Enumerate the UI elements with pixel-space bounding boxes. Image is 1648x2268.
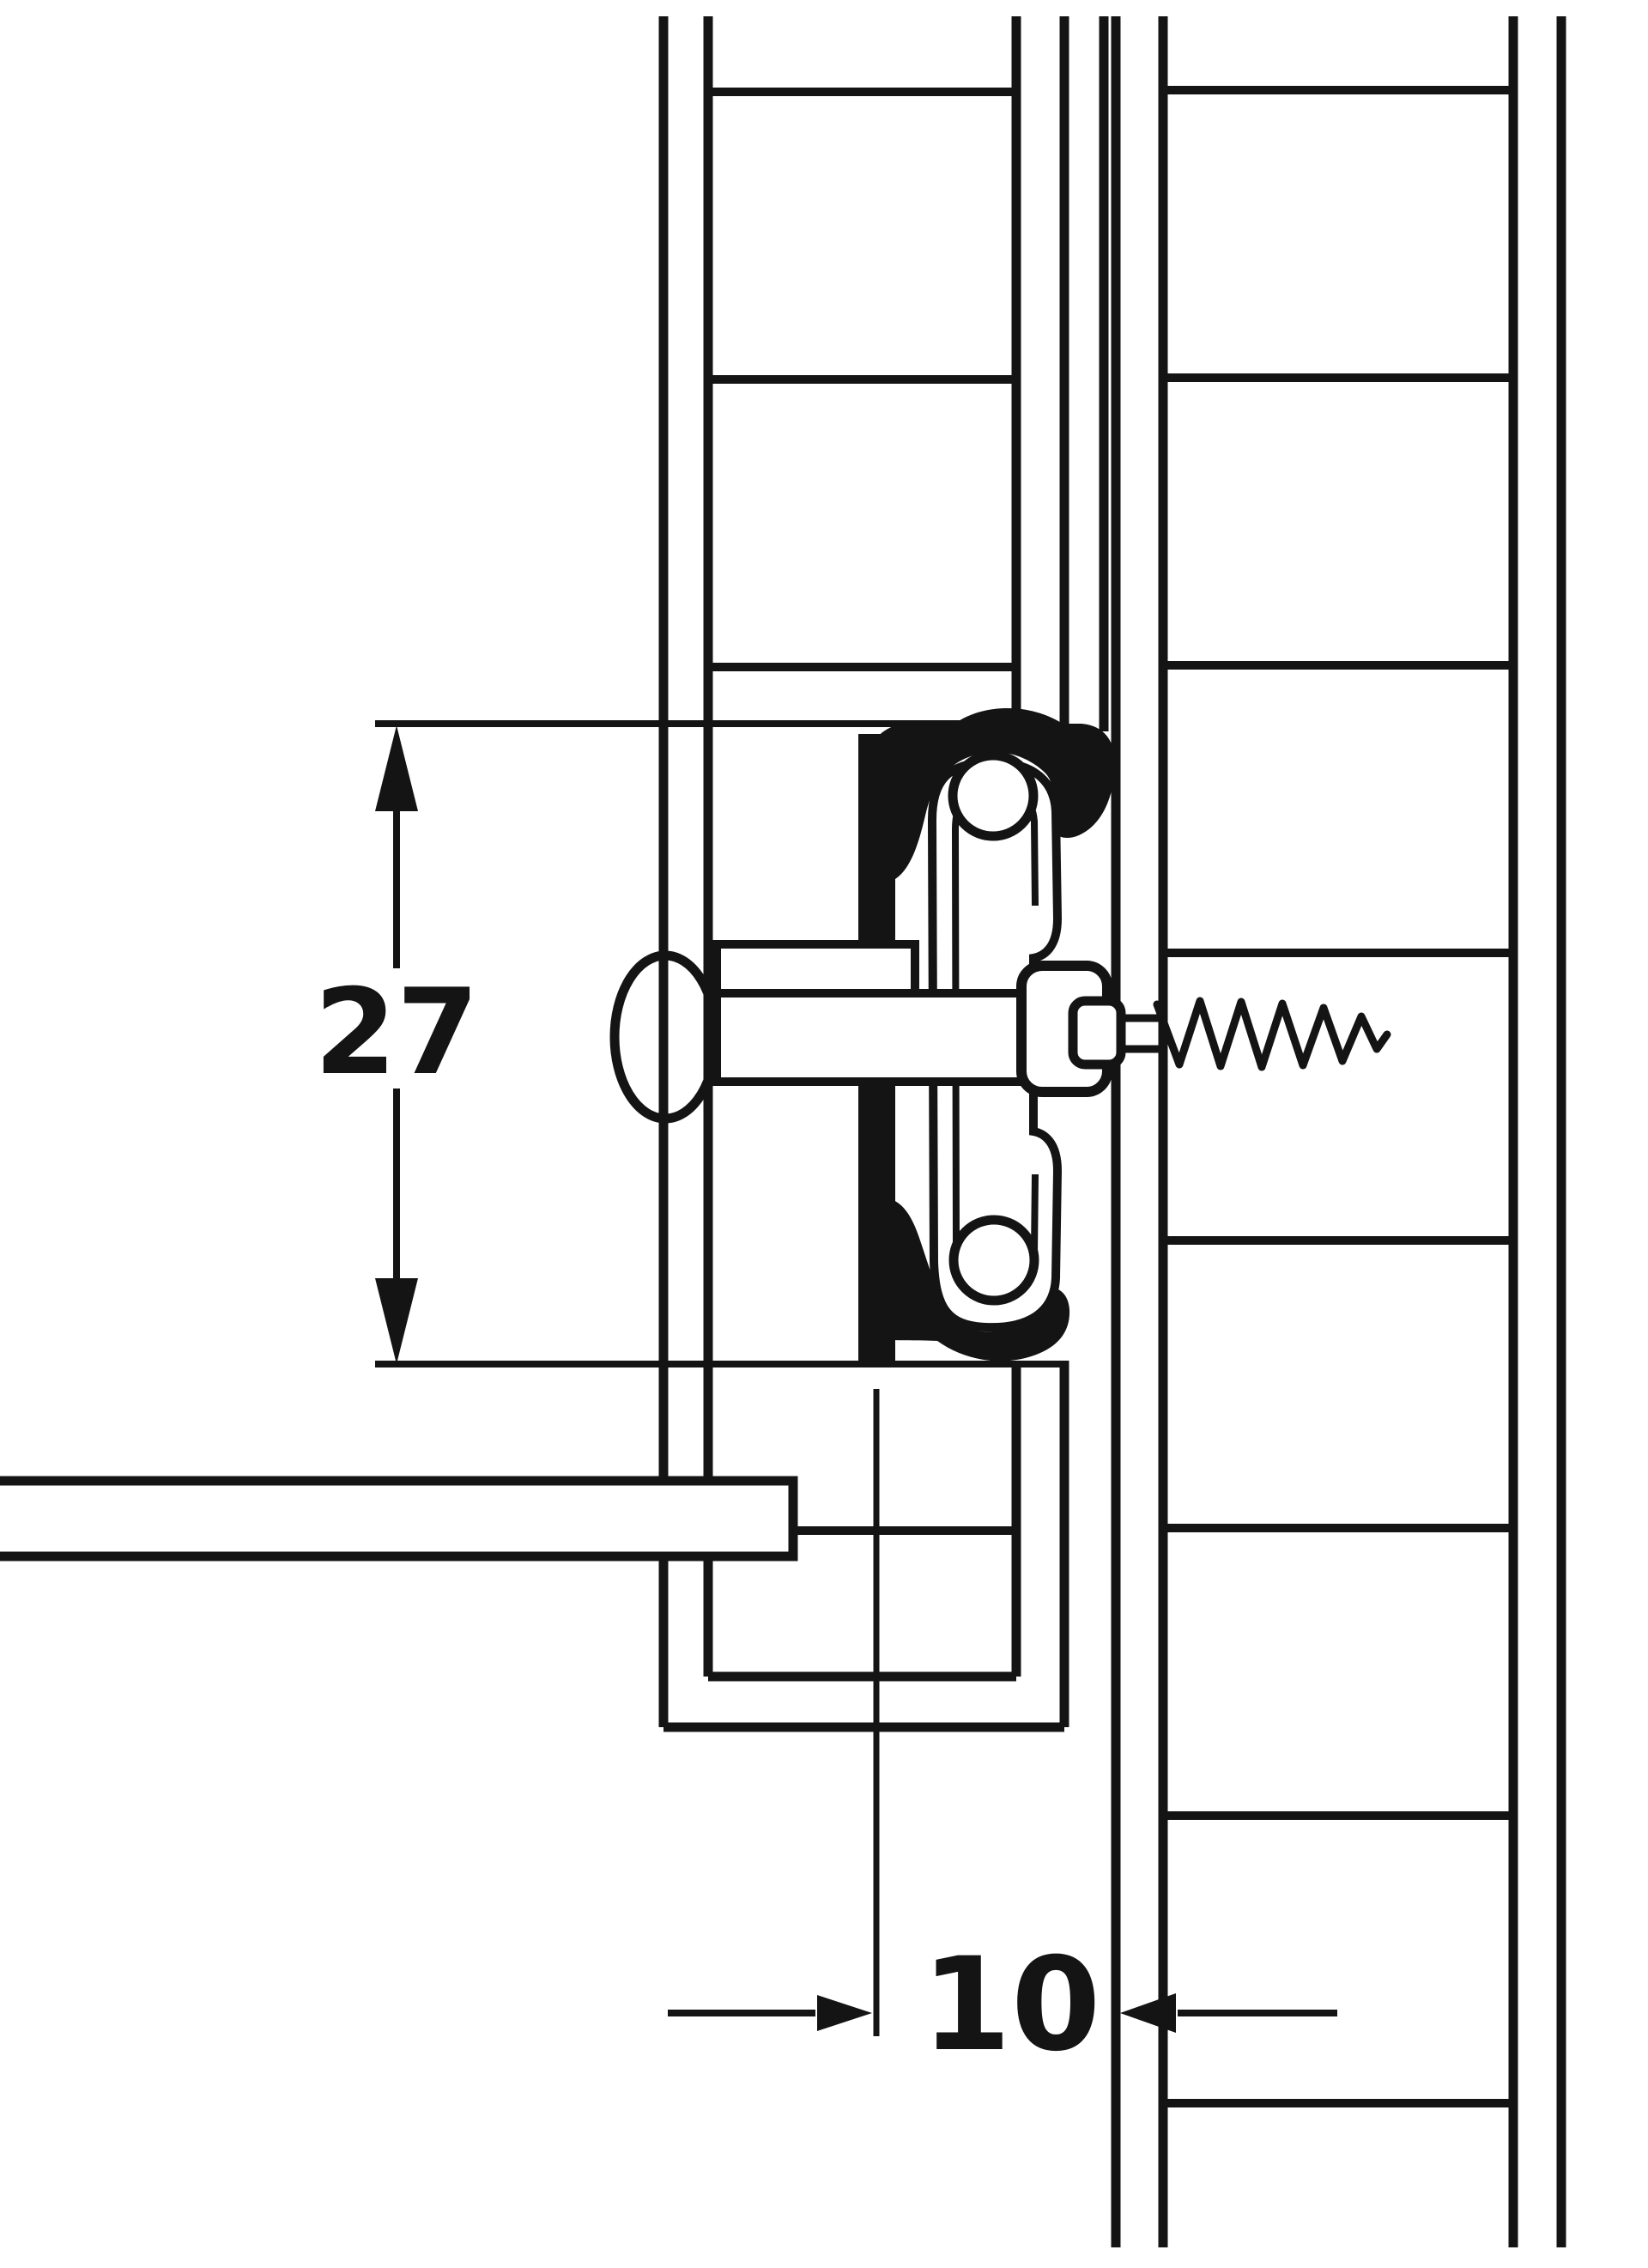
dimension-label-10: 10 (922, 1931, 1101, 2080)
ball-bearing-top (953, 755, 1033, 836)
drawer-runner-cross-section-drawing: 27 10 (0, 0, 1648, 2268)
arrow-left-icon (1120, 1993, 1176, 2033)
dimension-label-27: 27 (314, 963, 479, 1101)
arrow-down-icon (375, 1278, 418, 1364)
dimension-groove-height: 27 (314, 725, 479, 1364)
drawer-bottom-panel (0, 1481, 1016, 1556)
technical-drawing-page: 27 10 (0, 0, 1648, 2268)
arrow-up-icon (375, 725, 418, 811)
mounting-screw (1073, 1001, 1387, 1067)
screw-thread (1157, 1001, 1387, 1067)
screw-head (1073, 1001, 1121, 1064)
cabinet-side-panel (1116, 16, 1561, 2247)
ball-bearing-bottom (954, 1220, 1034, 1301)
arrow-right-icon (817, 1995, 872, 2031)
dimension-side-clearance: 10 (668, 1931, 1337, 2080)
